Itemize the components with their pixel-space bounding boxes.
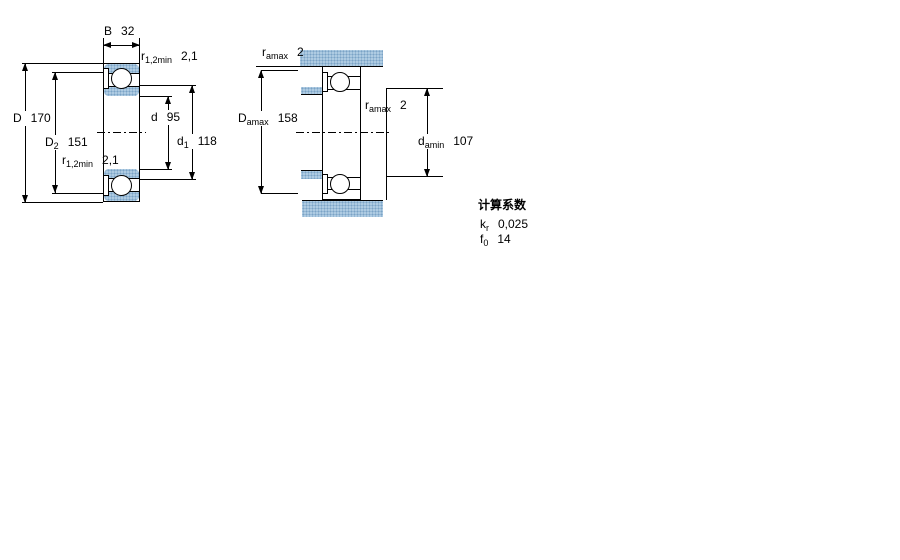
label-Damax-subscript: amax xyxy=(247,117,269,127)
label-Damax-value: 158 xyxy=(278,111,298,125)
label-d-value: 95 xyxy=(167,110,180,124)
housing-bore-band xyxy=(300,50,383,67)
Damax-arrow-down xyxy=(258,186,264,194)
d1-arrow-up xyxy=(189,85,195,93)
shield-top xyxy=(103,68,109,89)
axis-centerline-left-figure xyxy=(97,132,146,133)
D2-arrow-down xyxy=(52,185,58,193)
label-ra-mid-value: 2 xyxy=(400,98,407,112)
label-D2-value: 151 xyxy=(68,135,88,149)
damin-dimension-line xyxy=(427,88,428,177)
label-D-symbol: D xyxy=(13,111,22,125)
label-r12-bottom-value: 2,1 xyxy=(102,153,119,167)
D-extension-line-bottom xyxy=(22,202,103,203)
label-d1-subscript: 1 xyxy=(184,140,189,150)
d1-dimension-line xyxy=(192,85,193,180)
factor-f0-subscript: 0 xyxy=(483,238,488,248)
label-d1-value: 118 xyxy=(198,134,217,148)
damin-arrow-down xyxy=(424,169,430,177)
D-extension-line-top xyxy=(22,63,103,64)
shaft-band xyxy=(302,200,383,217)
label-abutment-Damax: Damax158 xyxy=(236,111,300,126)
calculation-factors-title: 计算系数 xyxy=(478,198,526,212)
label-outer-diameter-D: D170 xyxy=(11,111,53,126)
factor-f0-value: 14 xyxy=(497,232,510,246)
Damax-dimension-line xyxy=(261,70,262,194)
ball-top-mounted xyxy=(330,72,350,92)
damin-extension-line-bottom xyxy=(386,176,443,177)
D2-extension-line-bottom xyxy=(52,193,103,194)
label-ra-top-value: 2 xyxy=(297,45,304,59)
label-recess-diameter-D2: D2151 xyxy=(43,135,90,150)
shield-top-mounted xyxy=(322,72,328,92)
factor-kr: kr0,025 xyxy=(480,217,528,232)
label-ra-top-subscript: amax xyxy=(266,51,288,61)
label-r12-top-value: 2,1 xyxy=(181,49,198,63)
D2-arrow-up xyxy=(52,72,58,80)
shield-bottom-mounted xyxy=(322,174,328,194)
label-r12-bottom-subscript: 1,2min xyxy=(66,159,93,169)
b-arrow-left xyxy=(103,42,111,48)
D-dimension-line xyxy=(25,63,26,203)
label-B-value: 32 xyxy=(121,24,134,38)
d-arrow-up xyxy=(165,96,171,104)
D-arrow-down xyxy=(22,195,28,203)
label-chamfer-r12-bottom: r1,2min2,1 xyxy=(62,153,119,168)
factor-f0: f014 xyxy=(480,232,511,247)
housing-shoulder xyxy=(301,87,322,95)
ra-top-extension-line xyxy=(256,66,300,67)
d-arrow-down xyxy=(165,162,171,170)
label-shoulder-diameter-d1: d1118 xyxy=(175,134,219,149)
shield-bottom xyxy=(103,175,109,196)
label-chamfer-r12-top: r1,2min2,1 xyxy=(141,49,198,64)
d-dimension-line xyxy=(168,96,169,170)
label-damin-value: 107 xyxy=(453,134,473,148)
label-width-B: B32 xyxy=(104,24,134,39)
label-r12-top-subscript: 1,2min xyxy=(145,55,172,65)
label-B-symbol: B xyxy=(104,24,112,38)
label-fillet-ra-mid: ramax2 xyxy=(365,98,407,113)
label-abutment-damin: damin107 xyxy=(416,134,475,149)
label-bore-diameter-d: d95 xyxy=(149,110,182,125)
label-ra-mid-subscript: amax xyxy=(369,104,391,114)
label-damin-subscript: amin xyxy=(425,140,445,150)
ball-bottom-mounted xyxy=(330,174,350,194)
D-arrow-up xyxy=(22,63,28,71)
Damax-arrow-up xyxy=(258,70,264,78)
ball-top xyxy=(111,68,132,89)
b-arrow-right xyxy=(132,42,140,48)
label-d-symbol: d xyxy=(151,110,158,124)
d1-arrow-down xyxy=(189,172,195,180)
ball-bottom xyxy=(111,175,132,196)
factor-kr-value: 0,025 xyxy=(498,217,528,231)
label-Damax-symbol: D xyxy=(238,111,247,125)
Damax-extension-line-top xyxy=(261,70,298,71)
d1-extension-line-top xyxy=(140,85,196,86)
label-D-value: 170 xyxy=(31,111,51,125)
label-d1-symbol: d xyxy=(177,134,184,148)
Damax-extension-line-bottom xyxy=(261,193,298,194)
label-damin-symbol: d xyxy=(418,134,425,148)
label-D2-subscript: 2 xyxy=(54,141,59,151)
damin-arrow-up xyxy=(424,88,430,96)
damin-extension-line-top xyxy=(386,88,443,89)
bearing-dimension-drawing: B32 D170 D2151 r1,2min2,1 r1,2min2,1 d95… xyxy=(0,0,900,560)
shaft-shoulder xyxy=(301,170,322,179)
label-fillet-ra-top: ramax2 xyxy=(262,45,304,60)
D2-extension-line-top xyxy=(52,72,103,73)
d1-extension-line-bottom xyxy=(140,179,196,180)
axis-centerline-right-figure xyxy=(296,132,390,133)
label-D2-symbol: D xyxy=(45,135,54,149)
D2-dimension-line xyxy=(55,72,56,193)
